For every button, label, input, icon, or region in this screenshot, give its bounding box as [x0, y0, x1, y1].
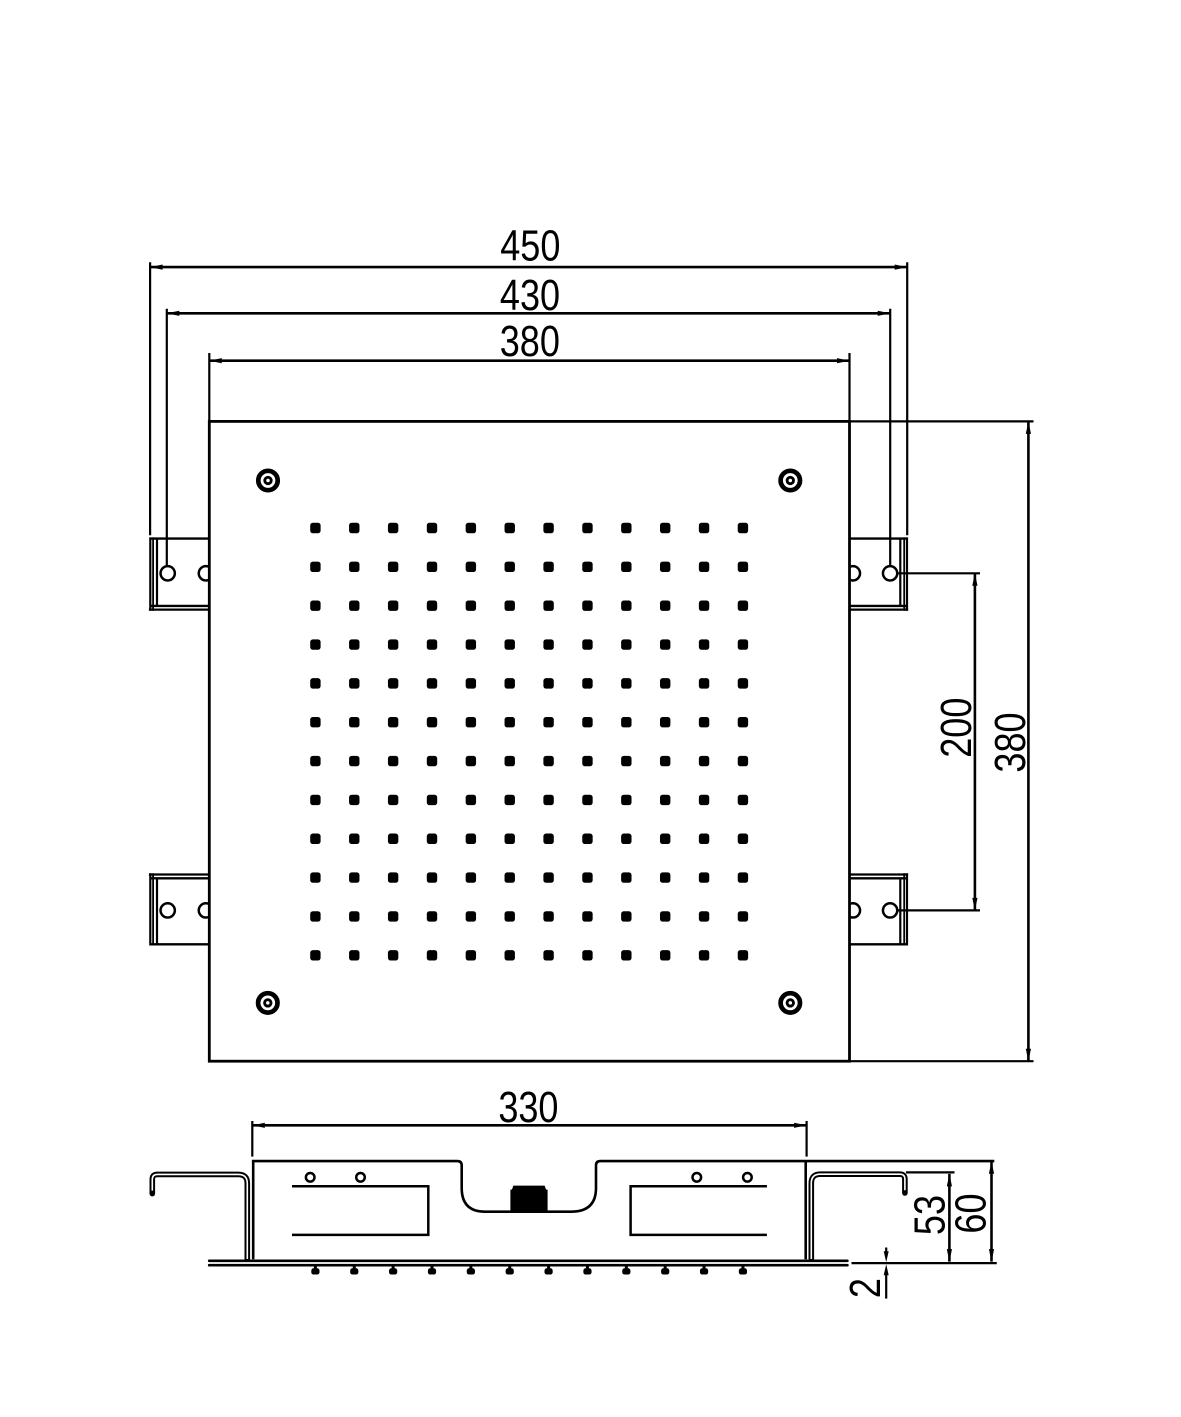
- svg-text:380: 380: [500, 317, 560, 366]
- svg-text:450: 450: [500, 221, 560, 270]
- svg-text:430: 430: [500, 270, 560, 319]
- svg-text:330: 330: [498, 1082, 558, 1131]
- svg-text:380: 380: [985, 712, 1034, 772]
- svg-text:60: 60: [946, 1193, 995, 1233]
- svg-text:200: 200: [931, 698, 980, 758]
- svg-text:2: 2: [841, 1278, 890, 1298]
